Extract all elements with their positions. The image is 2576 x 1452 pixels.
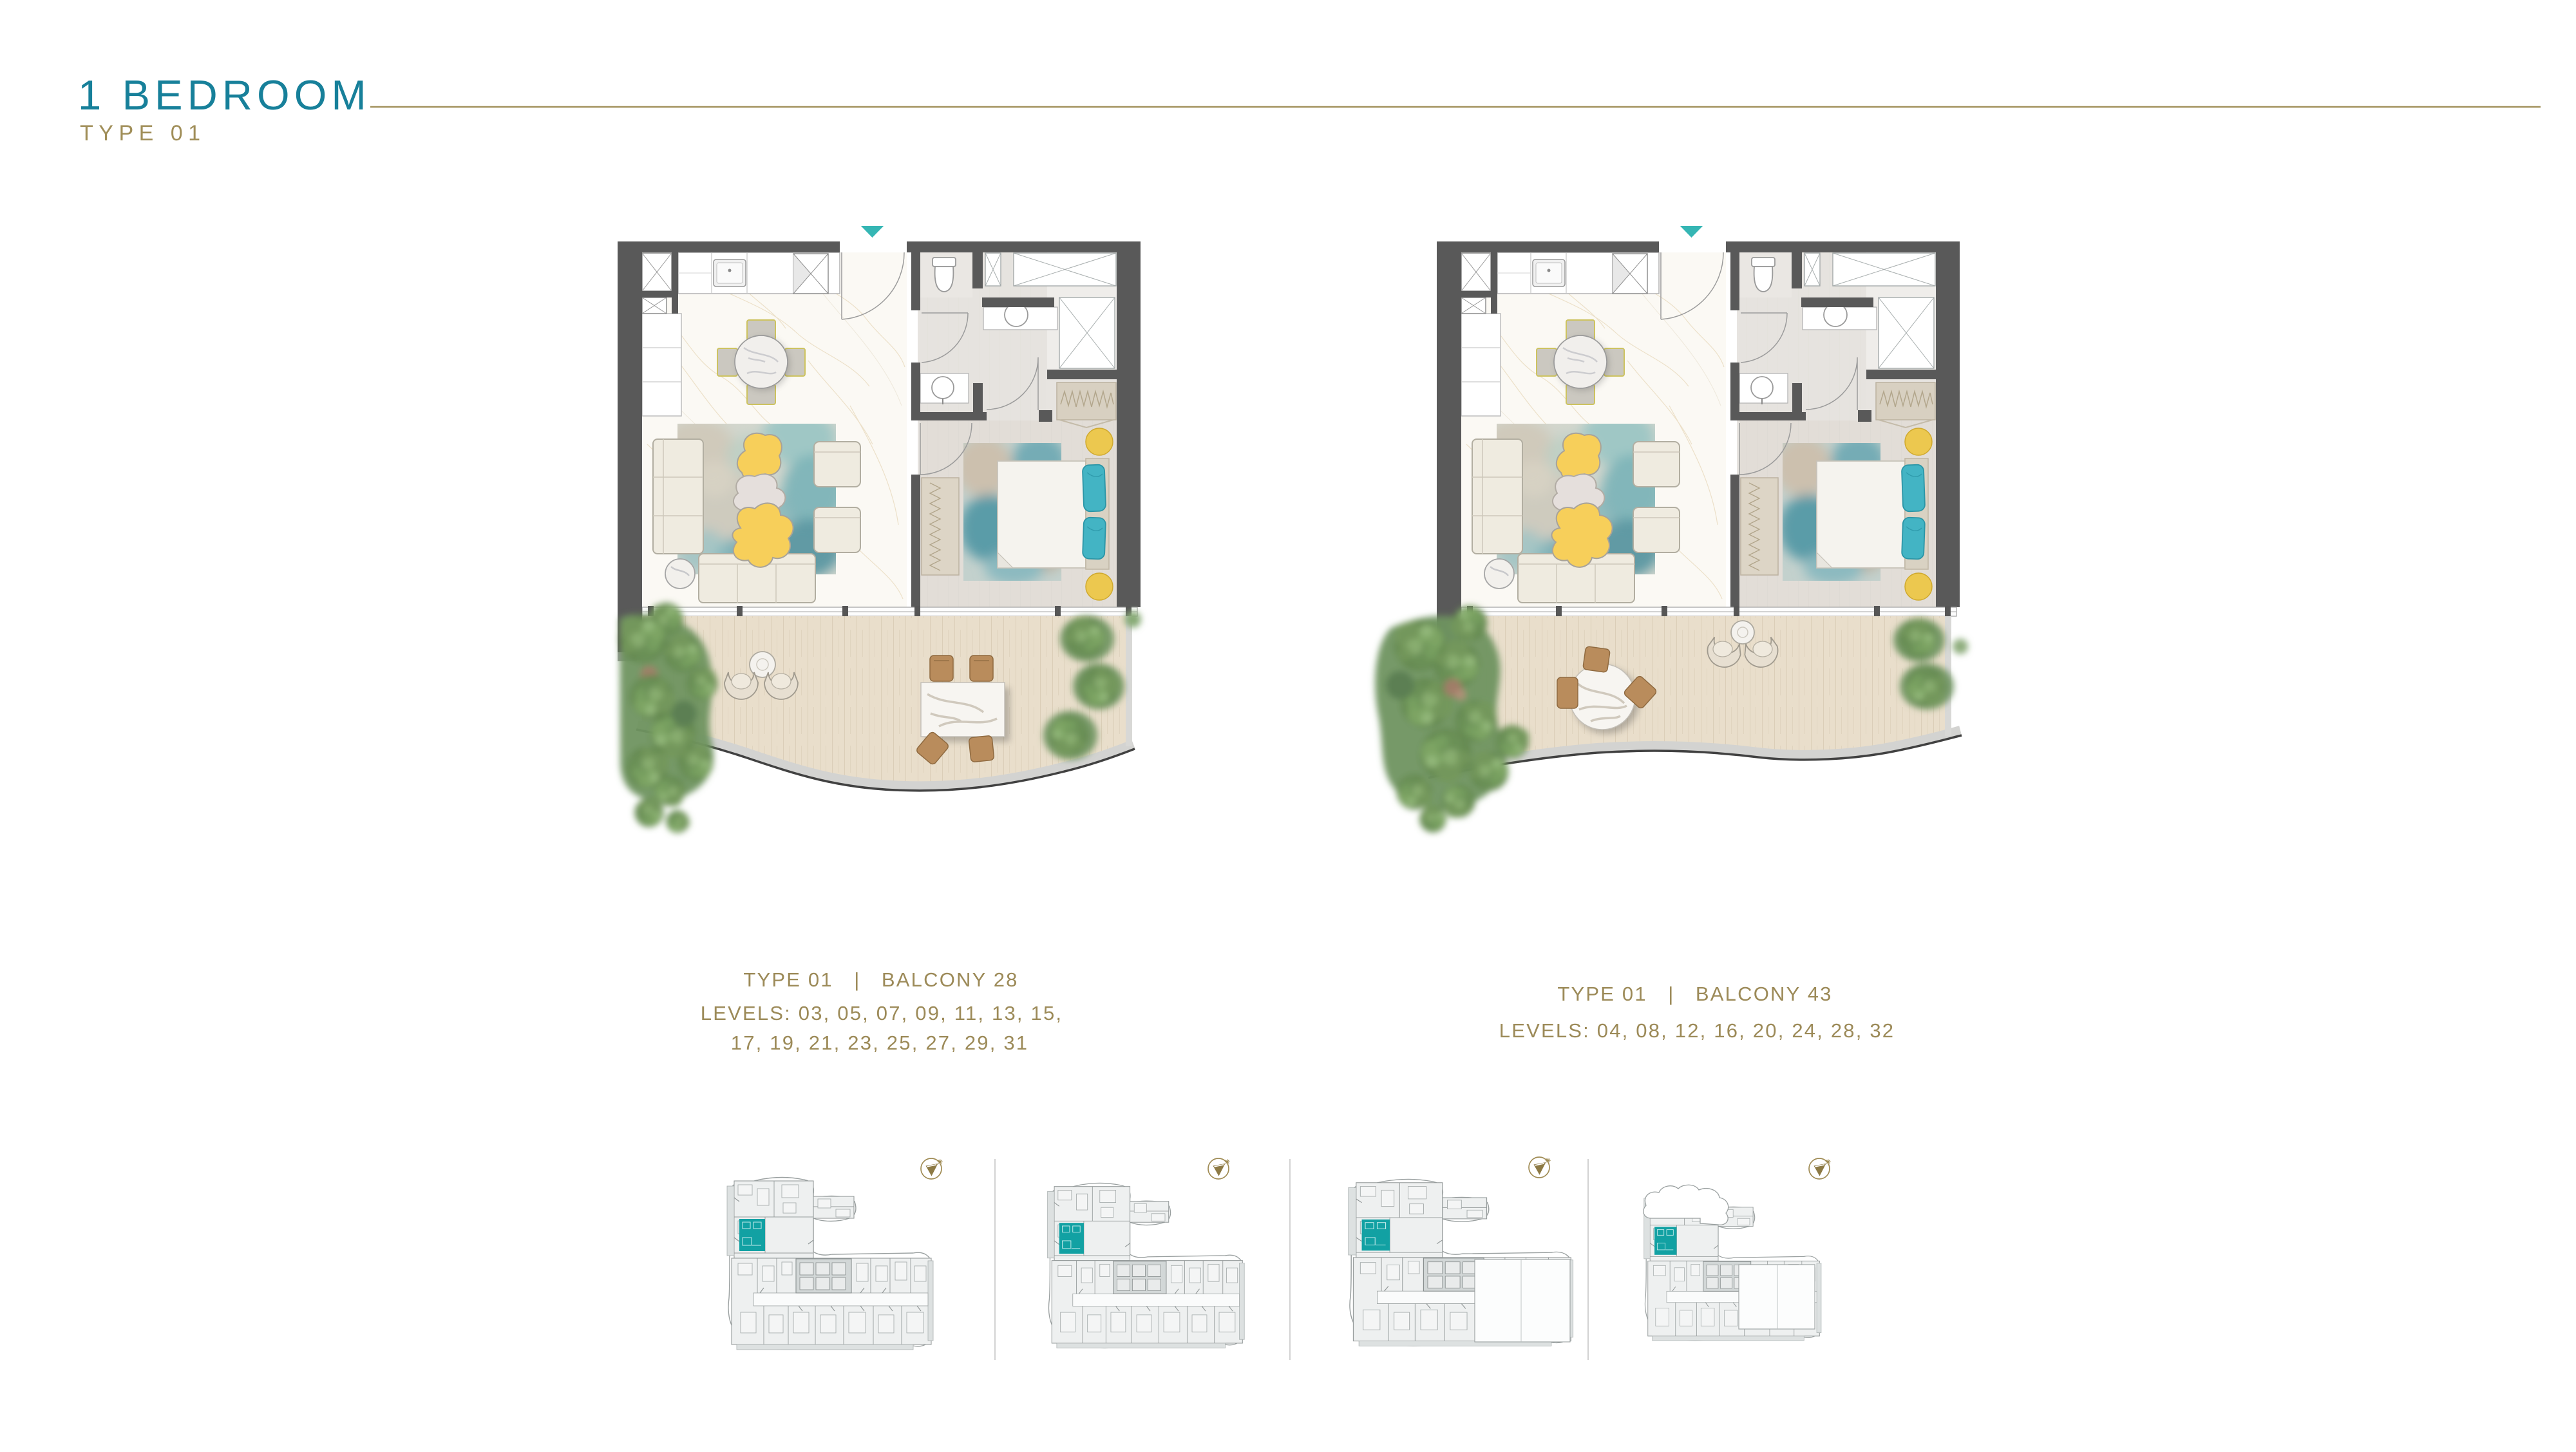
svg-text:TYPE 01 | BALCONY 28: TYPE 01 | BALCONY 28 — [743, 968, 1018, 991]
svg-text:LEVELS: 03, 05, 07, 09, 11, 13: LEVELS: 03, 05, 07, 09, 11, 13, 15, — [701, 1002, 1063, 1024]
svg-text:TYPE 01: TYPE 01 — [80, 121, 206, 146]
svg-text:TYPE 01 | BALCONY 43: TYPE 01 | BALCONY 43 — [1557, 983, 1832, 1005]
svg-text:17, 19, 21, 23, 25, 27, 29, 31: 17, 19, 21, 23, 25, 27, 29, 31 — [731, 1032, 1028, 1054]
svg-text:1 BEDROOM: 1 BEDROOM — [78, 71, 371, 118]
svg-text:LEVELS: 04, 08, 12, 16, 20, 24: LEVELS: 04, 08, 12, 16, 20, 24, 28, 32 — [1499, 1019, 1895, 1042]
